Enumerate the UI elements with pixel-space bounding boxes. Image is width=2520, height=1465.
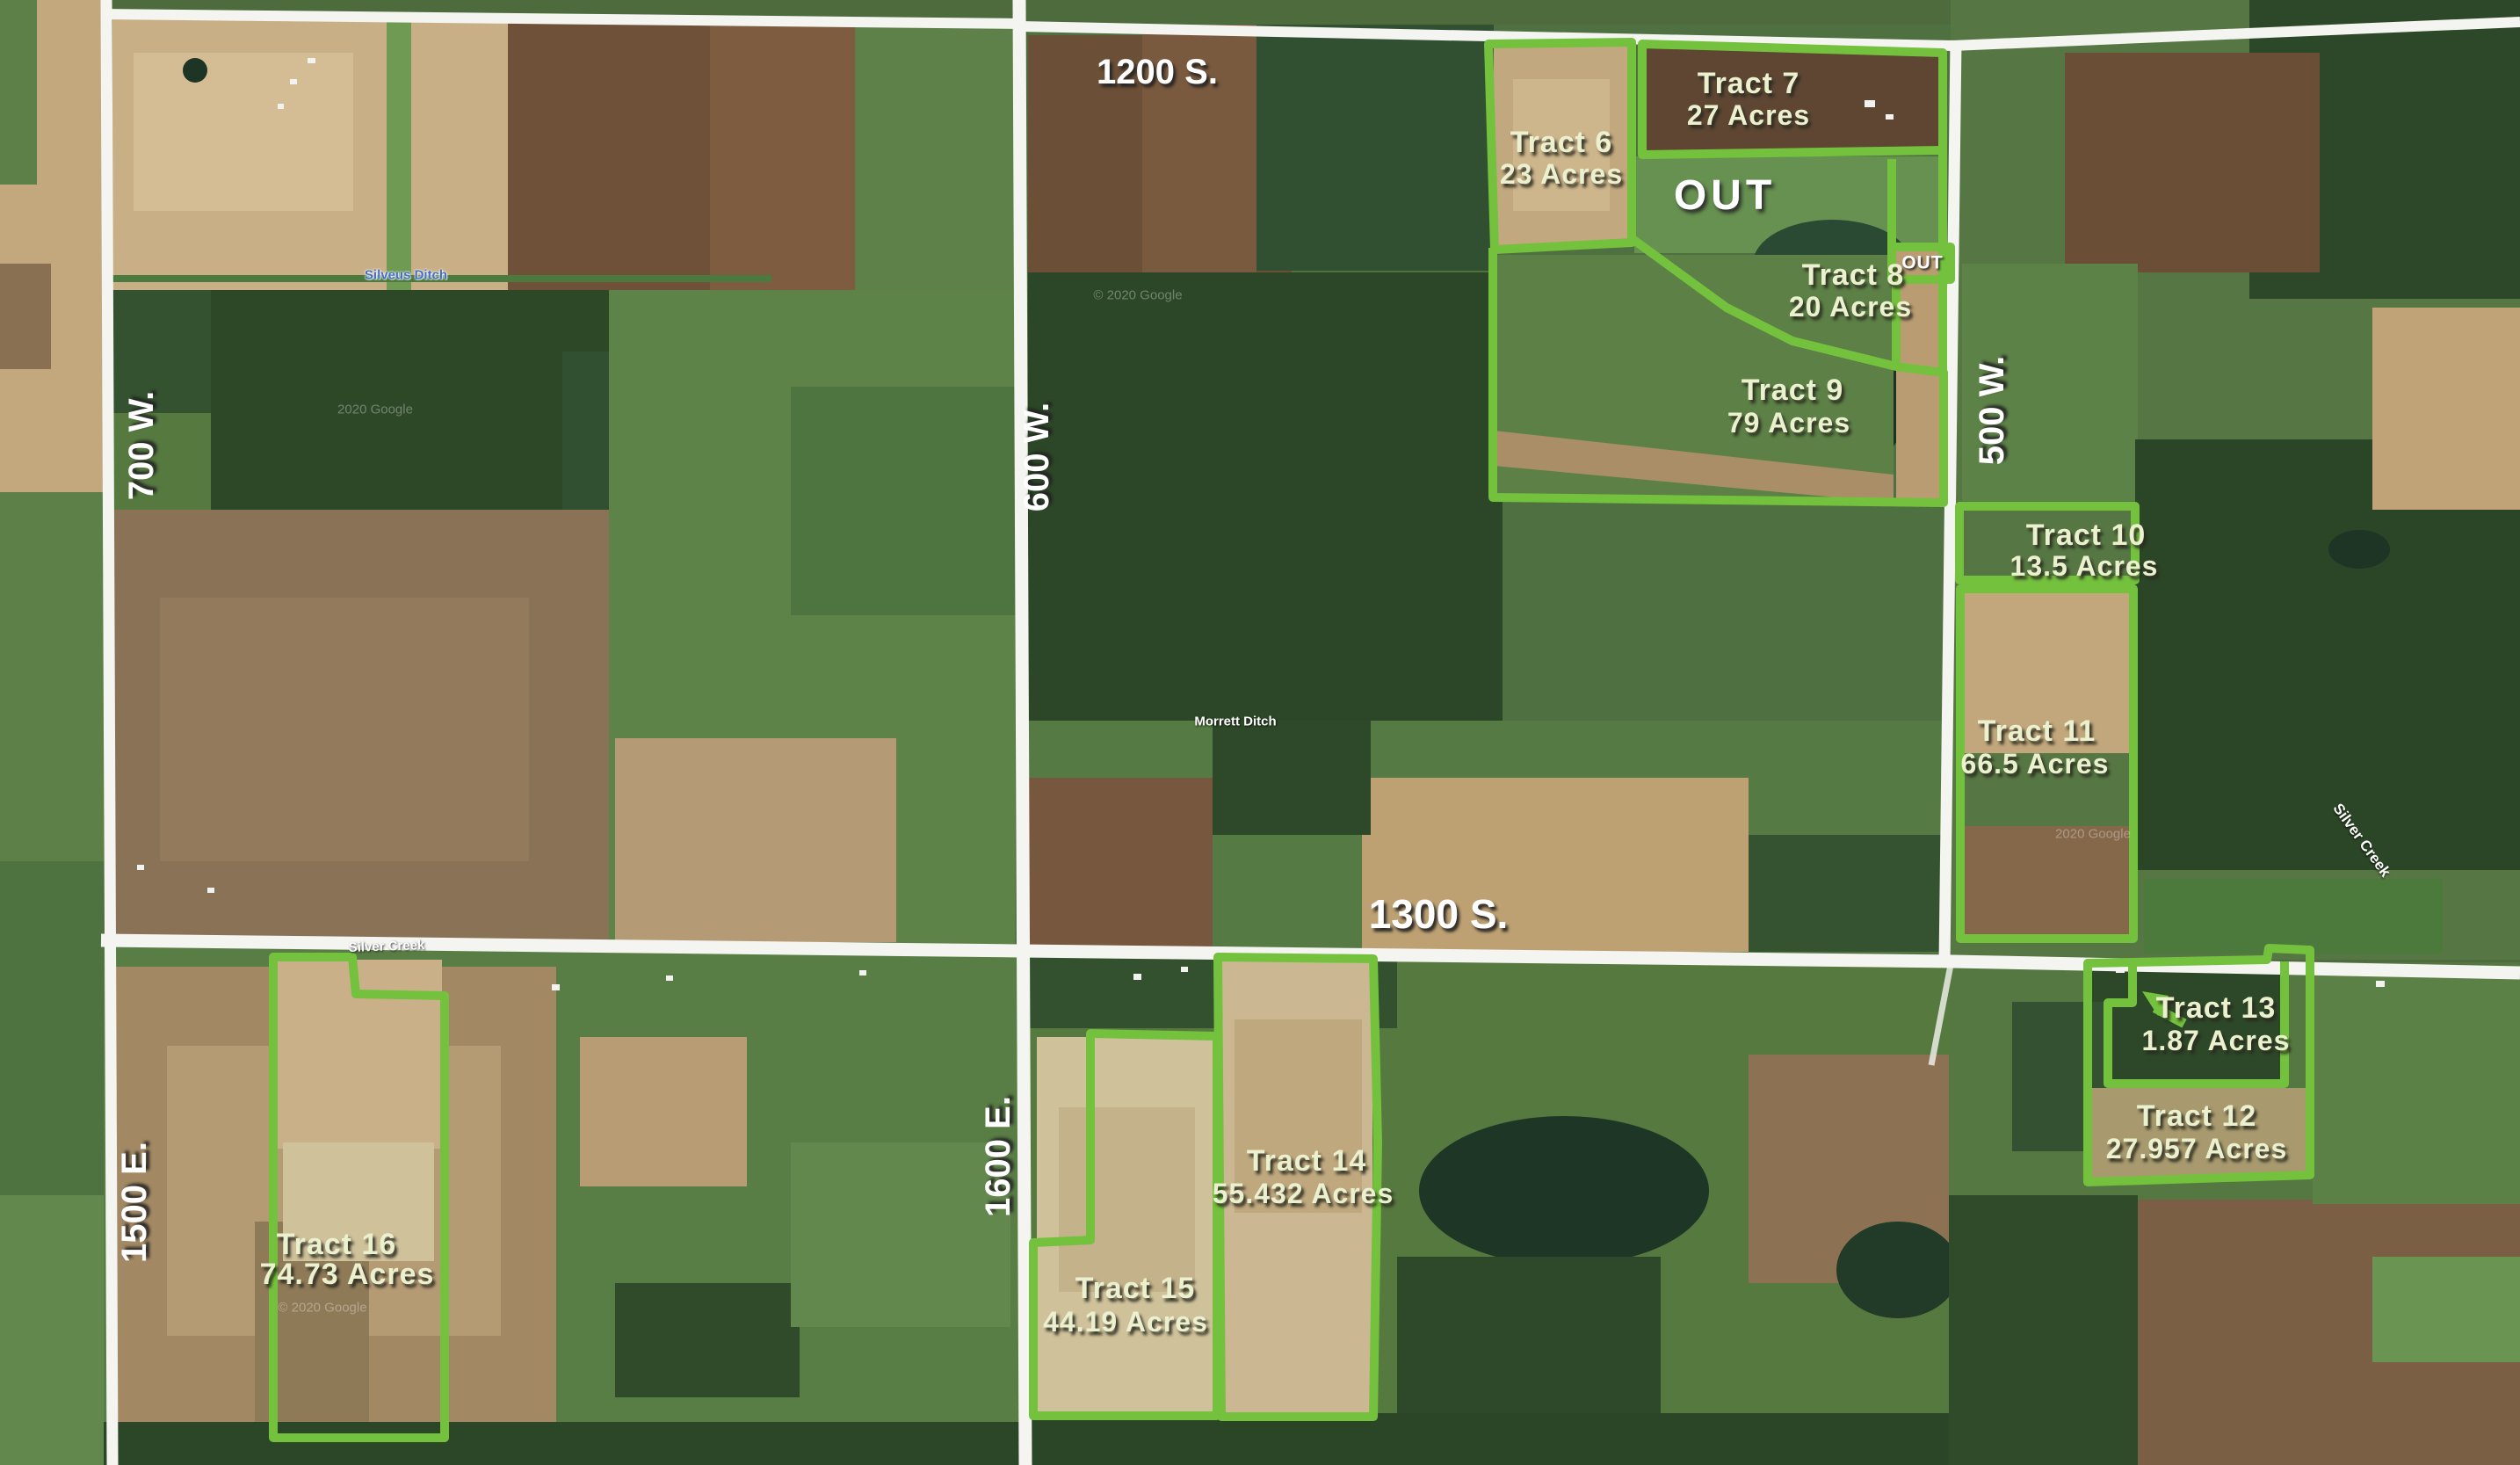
road-label-600w: 600 W. [1019, 403, 1054, 512]
out-label-large: OUT [1674, 175, 1776, 217]
road-label-1500e: 1500 E. [117, 1142, 152, 1263]
tract-8-acres: 20 Acres [1789, 293, 1912, 321]
silver-creek-label-left: Silver Creek [348, 939, 424, 954]
tract-16-name: Tract 16 [277, 1229, 397, 1259]
aerial-tract-map: 1200 S. 1300 S. 700 W. 600 W. 500 W. 150… [0, 0, 2520, 1465]
tract-10-name: Tract 10 [2026, 520, 2147, 550]
tract-6-acres: 23 Acres [1500, 160, 1623, 188]
google-watermark: 2020 Google [337, 403, 413, 417]
road-700w-1500e-vertical [106, 0, 112, 1465]
tract-6-name: Tract 6 [1510, 127, 1613, 157]
road-label-700w: 700 W. [124, 391, 159, 501]
out-label-small: OUT [1901, 254, 1943, 272]
silveus-ditch-label: Silveus Ditch [365, 269, 447, 282]
road-600w-1600e-vertical [1019, 0, 1025, 1465]
tract-13-name: Tract 13 [2156, 993, 2277, 1023]
tract-12-acres: 27.957 Acres [2106, 1135, 2288, 1163]
terrain-top-left-panel [112, 19, 1016, 944]
tract-7-name: Tract 7 [1698, 69, 1800, 98]
tract-9-acres: 79 Acres [1727, 409, 1850, 437]
google-watermark: © 2020 Google [278, 1302, 366, 1315]
terrain-right-panel [1951, 0, 2520, 960]
google-watermark: 2020 Google [2055, 828, 2131, 841]
terrain-bottom-left-panel [104, 946, 1023, 1465]
tract-15-name: Tract 15 [1075, 1273, 1196, 1303]
road-label-1200s: 1200 S. [1097, 54, 1218, 90]
tract-10-acres: 13.5 Acres [2010, 552, 2159, 580]
morrett-ditch-label: Morrett Ditch [1194, 715, 1276, 729]
road-label-1300s: 1300 S. [1369, 894, 1509, 934]
tract-15-acres: 44.19 Acres [1043, 1308, 1208, 1336]
tract-14-acres: 55.432 Acres [1213, 1179, 1394, 1208]
tract-9-name: Tract 9 [1742, 375, 1844, 405]
road-label-500w: 500 W. [1974, 356, 2009, 466]
tract-8-name: Tract 8 [1802, 260, 1905, 290]
google-watermark: © 2020 Google [1093, 289, 1182, 302]
tract-11-name: Tract 11 [1978, 716, 2096, 746]
tract-11-acres: 66.5 Acres [1961, 750, 2110, 778]
terrain-left-strip [0, 0, 104, 1465]
tract-16-acres: 74.73 Acres [260, 1259, 435, 1289]
tract-12-name: Tract 12 [2137, 1101, 2257, 1131]
tract-14-name: Tract 14 [1247, 1146, 1367, 1176]
road-label-1600e: 1600 E. [981, 1096, 1016, 1217]
tract-7-acres: 27 Acres [1687, 101, 1810, 129]
tract-13-acres: 1.87 Acres [2142, 1026, 2291, 1055]
terrain-bottom-center-panel [1028, 954, 1959, 1465]
